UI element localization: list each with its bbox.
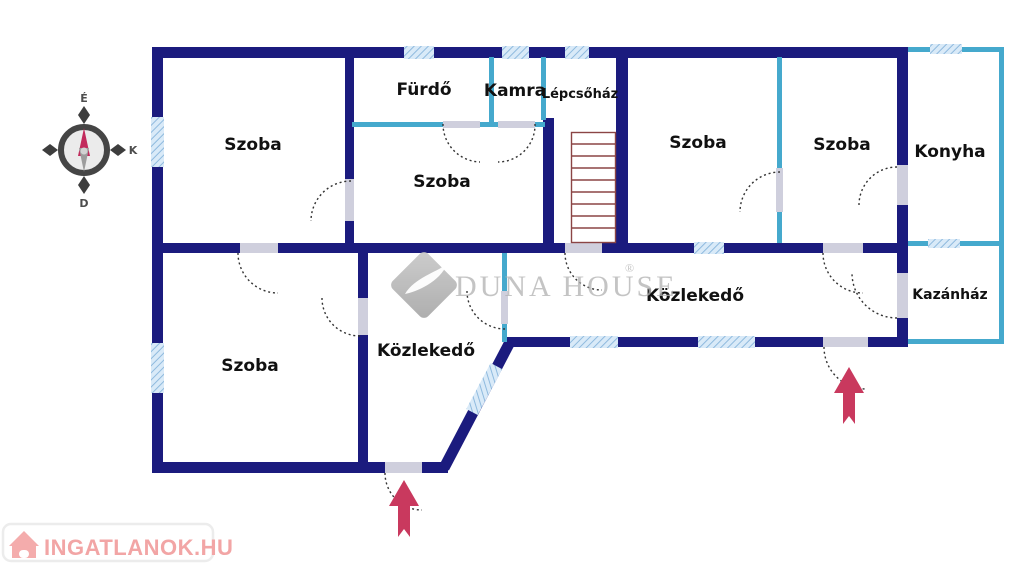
compass-east-point xyxy=(110,144,126,156)
room-label-kozlekedo-left: Közlekedő xyxy=(377,341,475,361)
compass-west-point xyxy=(42,144,58,156)
room-label-szoba-top-left: Szoba xyxy=(224,135,281,155)
stairs xyxy=(572,133,616,243)
window-diagonal xyxy=(466,363,502,415)
entrance-arrows xyxy=(389,367,864,537)
room-label-szoba-bottom-left: Szoba xyxy=(221,356,278,376)
window xyxy=(404,46,434,59)
entrance-arrow-icon xyxy=(389,480,419,537)
door-swing xyxy=(859,167,897,205)
wall-segment xyxy=(358,253,368,462)
window xyxy=(694,242,724,254)
window xyxy=(151,343,164,393)
door-opening xyxy=(498,121,535,128)
site-logo: INGATLANOK.HU xyxy=(3,524,233,561)
door-opening xyxy=(443,121,480,128)
door-opening xyxy=(823,243,863,253)
compass-east-label: K xyxy=(129,144,138,157)
duna-house-text: DUNA HOUSE xyxy=(455,270,678,303)
door-opening xyxy=(565,243,602,253)
light-wall-segment xyxy=(777,57,782,243)
light-wall-segment xyxy=(908,339,1003,344)
door-opening xyxy=(358,298,368,335)
door-swing xyxy=(498,124,535,162)
wall-segment xyxy=(543,118,554,243)
door-swing xyxy=(238,253,278,293)
floor-plan-page: Szoba Fürdő Kamra Lépcsőház Szoba Szoba … xyxy=(0,0,1024,566)
door-swing xyxy=(322,298,360,336)
compass-icon: É K D xyxy=(42,92,138,210)
compass-north-point xyxy=(78,106,90,124)
door-swing xyxy=(740,172,780,212)
compass-hub xyxy=(81,148,88,155)
wall-segment xyxy=(152,47,908,58)
window xyxy=(928,239,960,248)
main-walls xyxy=(152,47,908,473)
floor-plan-svg: Szoba Fürdő Kamra Lépcsőház Szoba Szoba … xyxy=(0,0,1024,566)
room-label-szoba-north-1: Szoba xyxy=(669,133,726,153)
room-label-furdo: Fürdő xyxy=(396,80,451,100)
compass-south-label: D xyxy=(79,197,88,210)
door-swing xyxy=(443,124,480,162)
room-label-szoba-middle: Szoba xyxy=(413,172,470,192)
room-label-lepcsohaz: Lépcsőház xyxy=(542,87,618,102)
room-label-szoba-north-2: Szoba xyxy=(813,135,870,155)
site-logo-text: INGATLANOK.HU xyxy=(44,535,233,560)
room-label-konyha: Konyha xyxy=(914,142,985,162)
compass-north-label: É xyxy=(80,92,88,105)
window xyxy=(502,46,529,59)
door-swings xyxy=(238,124,897,510)
window xyxy=(570,336,618,348)
door-swing xyxy=(852,273,897,318)
door-swing xyxy=(823,253,863,293)
wall-segment xyxy=(152,47,163,473)
entrance-opening xyxy=(823,337,868,347)
window xyxy=(565,46,589,59)
window xyxy=(698,336,755,348)
entrance-arrow-icon xyxy=(834,367,864,424)
window xyxy=(151,117,164,167)
duna-house-watermark: DUNA HOUSE ® xyxy=(389,250,678,321)
door-opening xyxy=(897,165,908,205)
room-label-kamra: Kamra xyxy=(484,81,546,101)
door-opening xyxy=(776,168,783,212)
registered-trademark-icon: ® xyxy=(625,261,634,275)
window xyxy=(930,44,962,54)
door-opening xyxy=(345,179,354,221)
light-wall-segment xyxy=(999,47,1004,344)
door-opening xyxy=(897,273,908,318)
compass-south-point xyxy=(78,176,90,194)
entrance-opening xyxy=(385,462,422,473)
door-opening xyxy=(240,243,278,253)
room-label-kazanhaz: Kazánház xyxy=(912,287,987,303)
